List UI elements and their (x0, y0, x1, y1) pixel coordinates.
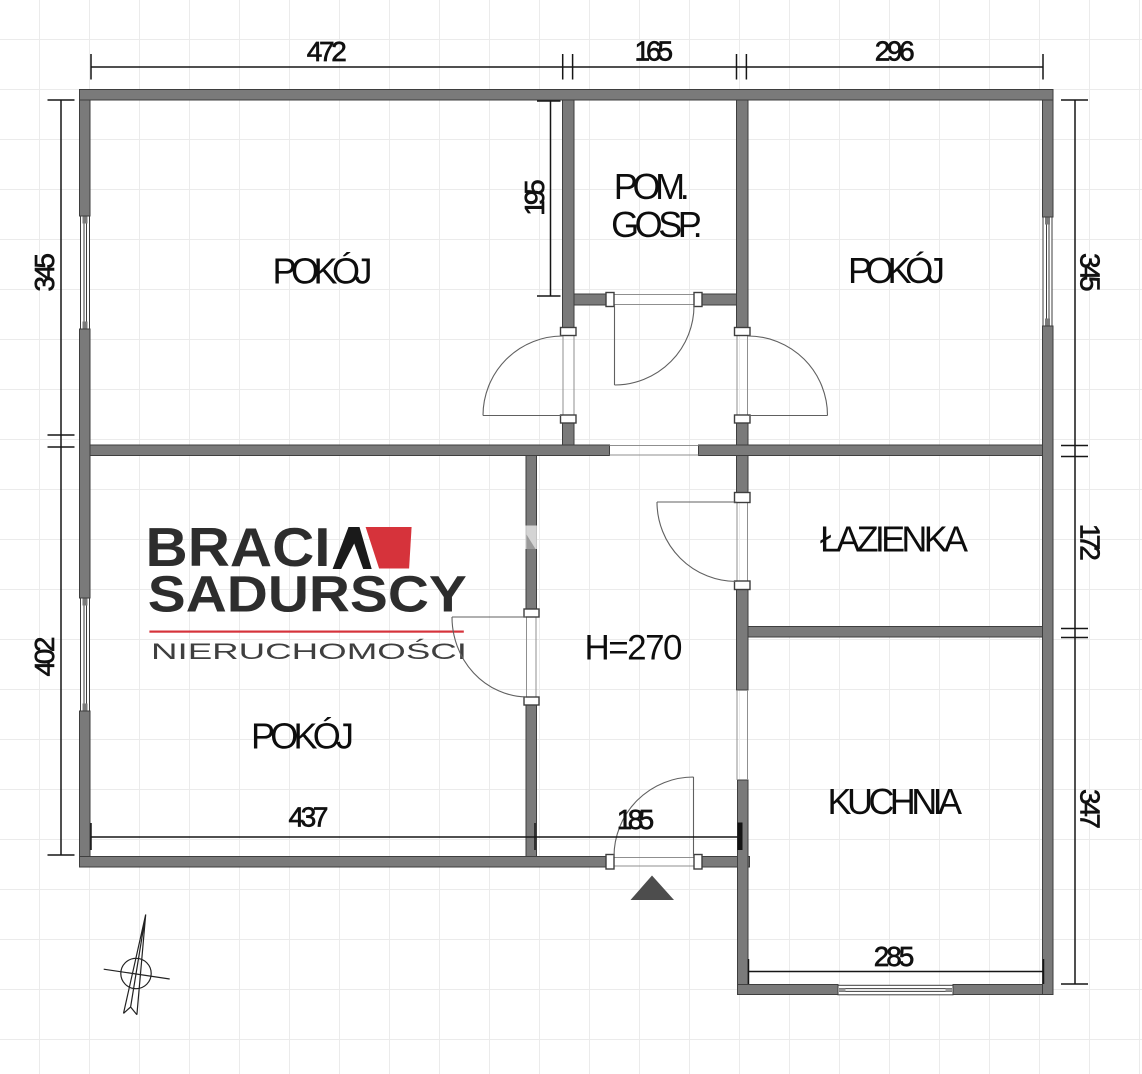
svg-text:KUCHNIA: KUCHNIA (828, 781, 963, 822)
svg-text:ŁAZIENKA: ŁAZIENKA (820, 519, 968, 560)
svg-text:NIERUCHOMOŚCI: NIERUCHOMOŚCI (151, 639, 467, 664)
svg-text:H=270: H=270 (585, 629, 683, 668)
svg-text:172: 172 (1075, 524, 1106, 561)
svg-text:POKÓJ: POKÓJ (848, 250, 945, 291)
svg-text:185: 185 (617, 804, 655, 835)
svg-text:472: 472 (307, 36, 347, 67)
svg-text:285: 285 (874, 941, 915, 972)
svg-text:165: 165 (635, 36, 674, 67)
svg-text:345: 345 (1075, 253, 1106, 292)
svg-text:POM.: POM. (614, 166, 690, 207)
svg-text:345: 345 (29, 253, 60, 292)
svg-text:SADURSCY: SADURSCY (148, 566, 467, 623)
svg-text:402: 402 (29, 637, 60, 677)
svg-text:GOSP.: GOSP. (611, 204, 703, 245)
svg-text:195: 195 (519, 179, 550, 216)
svg-text:POKÓJ: POKÓJ (273, 251, 373, 292)
svg-text:347: 347 (1075, 789, 1106, 829)
svg-text:437: 437 (289, 802, 329, 833)
svg-text:296: 296 (875, 36, 915, 67)
svg-text:POKÓJ: POKÓJ (251, 716, 354, 757)
